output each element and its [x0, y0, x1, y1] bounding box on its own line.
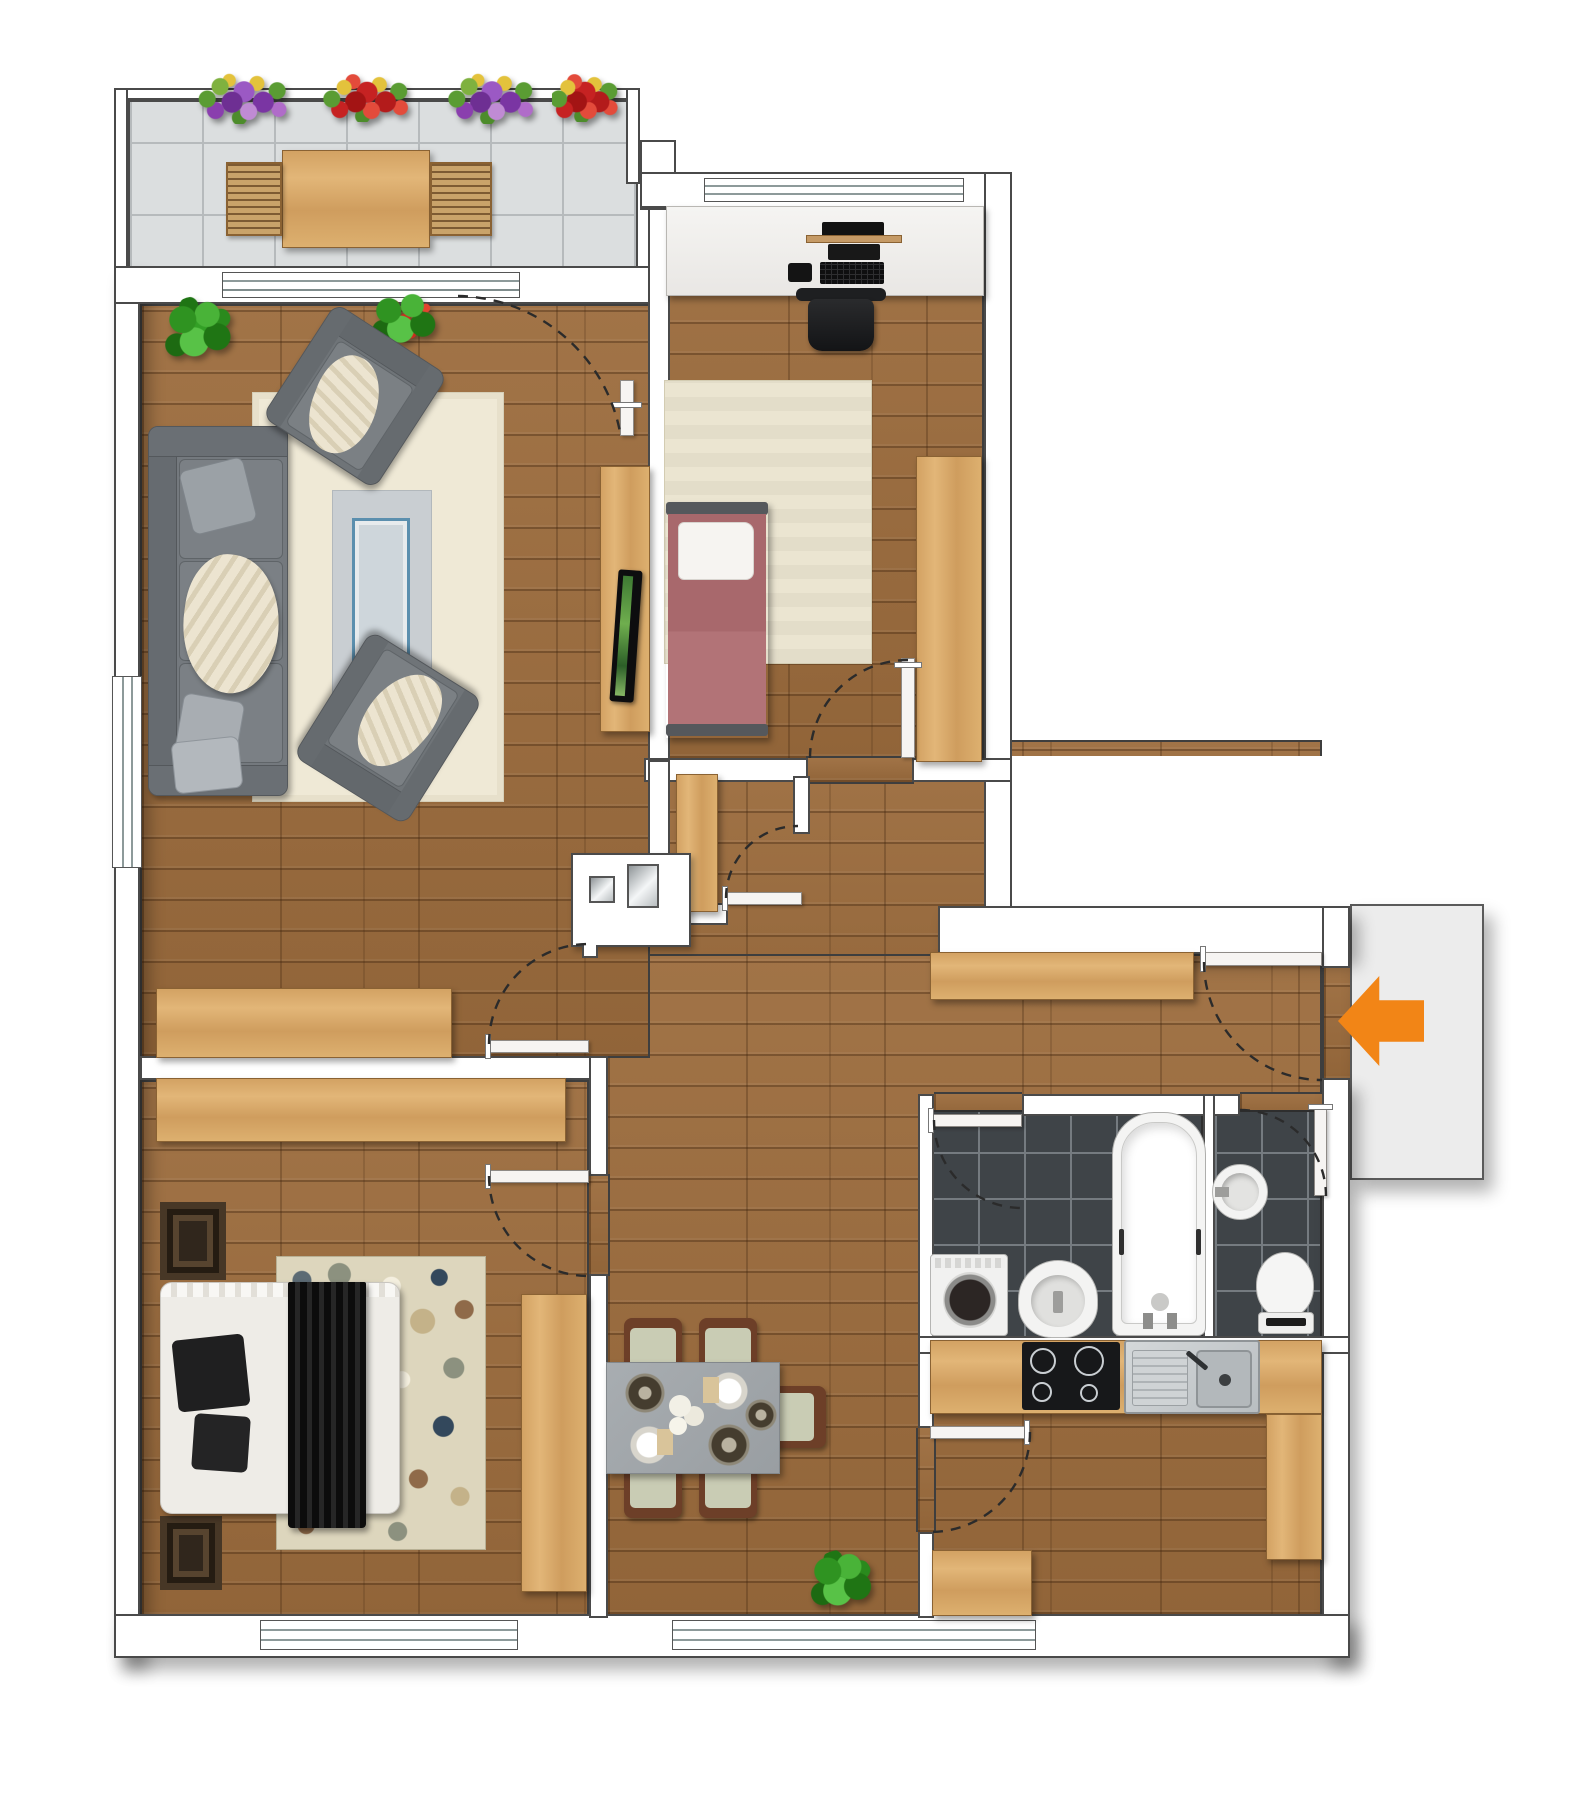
balcony-railing-right — [626, 88, 640, 184]
mouse-icon — [788, 263, 812, 282]
place-setting-dark — [625, 1373, 665, 1413]
door-kitchen-leaf — [930, 1426, 1030, 1439]
door-handle — [894, 662, 922, 668]
flower-box-icon — [323, 74, 411, 122]
flower-box-icon — [448, 72, 536, 124]
bed-footboard — [666, 724, 768, 736]
door-handle — [485, 1164, 491, 1189]
plant-icon — [808, 1550, 874, 1616]
flower-box-icon — [552, 74, 618, 122]
sink-drainer — [1132, 1350, 1188, 1406]
plant-icon — [160, 296, 236, 370]
floor-plan — [0, 0, 1575, 1808]
keyboard-icon — [820, 262, 884, 284]
nightstand — [160, 1202, 226, 1280]
washbasin-icon — [1212, 1164, 1268, 1220]
door-handle — [1200, 946, 1206, 972]
doorway — [587, 1174, 610, 1276]
wall-right-upper — [1322, 906, 1350, 968]
flower-centerpiece — [669, 1395, 691, 1417]
bedroom2-sideboard — [156, 1078, 566, 1142]
bed-single — [666, 502, 768, 738]
toilet-icon — [1254, 1252, 1316, 1336]
wardrobe — [916, 456, 982, 762]
wall-bedroom2-right-a — [589, 1056, 608, 1176]
kitchen-base-cabinet — [932, 1550, 1032, 1616]
door-handle — [612, 402, 642, 408]
office-chair — [796, 288, 886, 352]
bed-pillow — [678, 522, 754, 580]
wall-bedroom-right — [984, 172, 1012, 908]
balcony-table — [282, 150, 430, 248]
living-sideboard — [156, 988, 452, 1058]
wall-left — [114, 266, 140, 1658]
bed-blanket-black — [288, 1282, 366, 1528]
door-handle — [722, 886, 728, 911]
wall-hall-top — [938, 906, 1350, 954]
door-living-leaf — [489, 1040, 589, 1053]
doorway — [916, 1428, 936, 1532]
door-handle — [1308, 1104, 1333, 1110]
sofa-pillow — [170, 736, 243, 795]
bathtub-icon — [1112, 1112, 1206, 1336]
wardrobe — [521, 1294, 587, 1592]
door-handle — [1024, 1420, 1030, 1445]
balcony-bench-right — [430, 162, 492, 236]
kitchen-sink — [1124, 1340, 1260, 1414]
napkin — [657, 1429, 673, 1455]
hall-sideboard — [930, 952, 1194, 1000]
place-setting-dark — [745, 1399, 777, 1431]
window-bedroom-bottom — [260, 1620, 518, 1650]
bed-pillow-black — [191, 1413, 251, 1473]
nightstand — [160, 1516, 222, 1590]
bidet-icon — [1018, 1260, 1098, 1338]
monitor-stand — [806, 235, 902, 243]
sofa — [148, 426, 288, 796]
cooktop-icon — [1022, 1342, 1120, 1410]
closet-compartment — [627, 864, 659, 908]
flower-box-icon — [198, 72, 290, 124]
sink-basin — [1196, 1350, 1252, 1408]
kitchen-tall-cabinet — [1266, 1414, 1322, 1560]
window-bedroom-top — [704, 178, 964, 202]
hall-closet — [571, 853, 691, 947]
window-living-left — [112, 676, 142, 868]
doorway — [806, 756, 914, 784]
bed-pillow-black — [171, 1333, 250, 1412]
monitor-base — [828, 244, 880, 260]
washing-machine-icon — [930, 1254, 1008, 1336]
wall-corridor-stub — [793, 776, 810, 834]
balcony-railing-left — [114, 88, 128, 280]
dining-table — [606, 1362, 780, 1474]
closet-compartment — [589, 876, 615, 903]
sofa-armrest — [149, 427, 287, 457]
window-balcony-slider — [222, 272, 520, 298]
door-bedroom-top-leaf — [901, 658, 915, 758]
sofa-back — [149, 427, 177, 795]
closet-foot — [582, 945, 598, 958]
place-setting-dark — [707, 1423, 751, 1467]
door-corridor-leaf — [726, 892, 802, 905]
window-dining-bottom — [672, 1620, 1036, 1650]
door-handle — [485, 1034, 491, 1059]
door-bathroom-leaf — [932, 1114, 1022, 1127]
door-bedroom-bottom-leaf — [489, 1170, 589, 1183]
door-entrance-leaf — [1204, 952, 1322, 966]
wall-living-bedroom2 — [140, 1056, 608, 1080]
balcony-bench-left — [226, 162, 282, 236]
napkin — [703, 1377, 719, 1403]
outside-area — [1012, 756, 1324, 908]
door-balcony-leaf — [620, 380, 634, 436]
door-wc-leaf — [1314, 1108, 1327, 1196]
door-handle — [928, 1108, 934, 1133]
